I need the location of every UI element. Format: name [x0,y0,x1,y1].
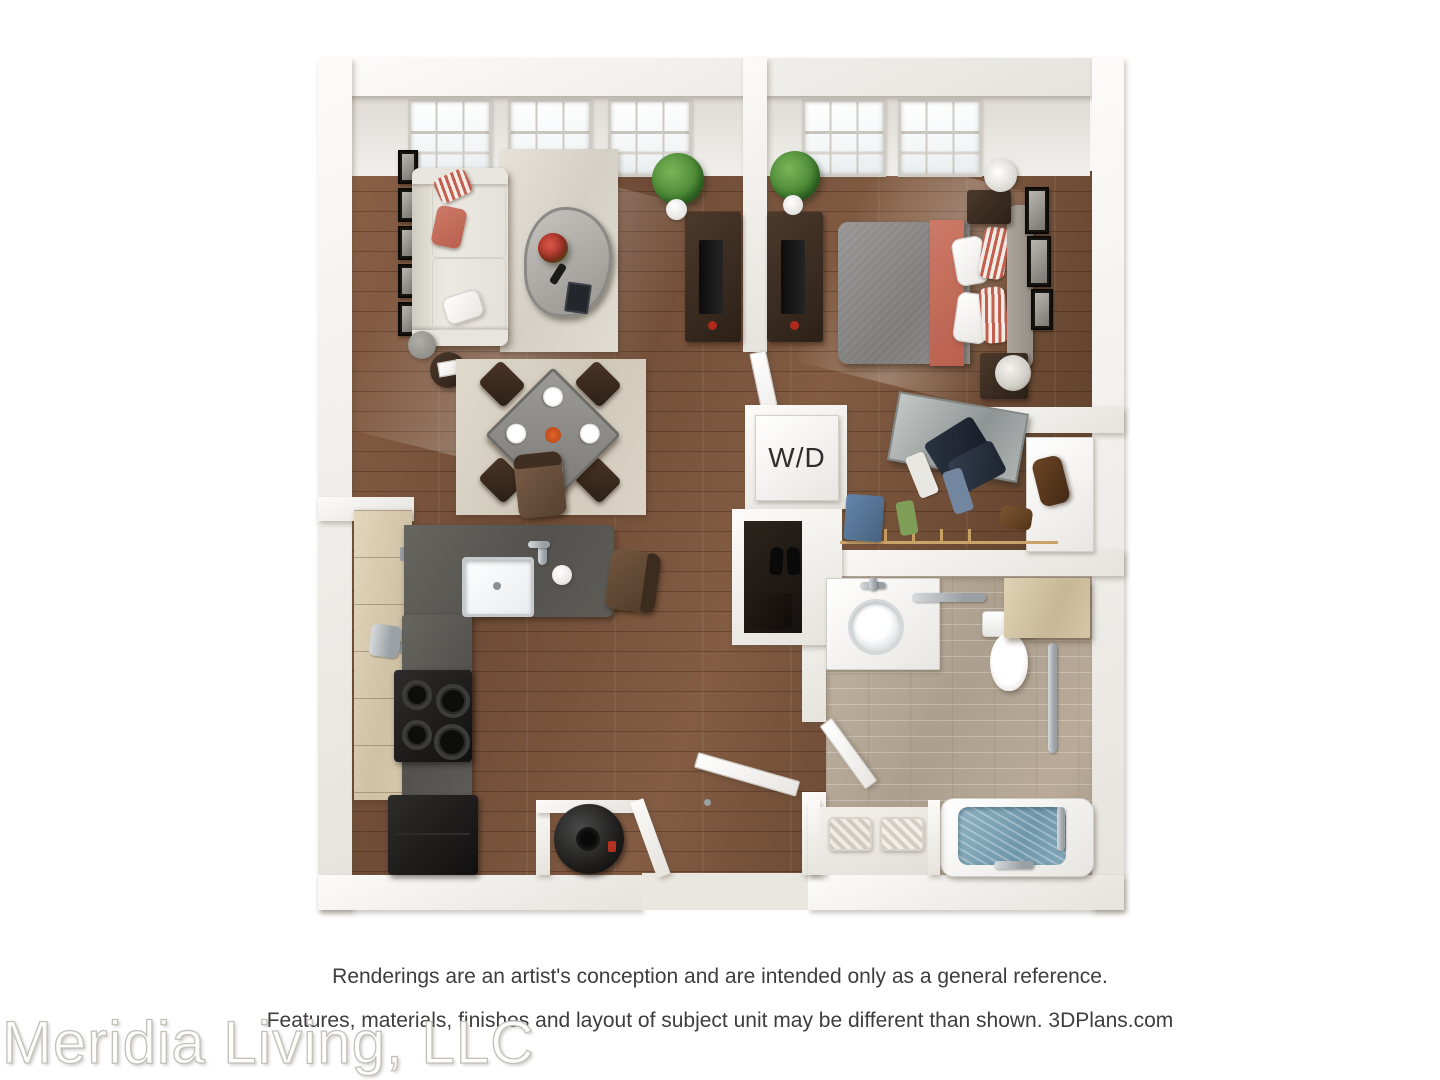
potted-plant [770,151,820,201]
tv-living [699,240,723,314]
vanity-sink [848,599,904,655]
flower-bouquet [538,233,568,263]
folded-jeans [843,494,884,543]
disclaimer-line-1: Renderings are an artist's conception an… [0,965,1440,989]
wall-art-frame [1031,289,1053,330]
plant-pot [666,199,687,220]
toilet-bowl [990,633,1028,691]
grab-bar [1048,643,1057,753]
washer-dryer-unit: W/D [755,415,839,501]
tub-faucet [994,861,1034,869]
washer-dryer-label: W/D [756,416,838,500]
centerpiece [542,424,565,447]
exterior-wall-top [345,58,1097,96]
window [408,99,492,177]
linen-closet-wall [808,800,820,875]
hanging-coats [748,593,792,629]
floor-plan-page: W/D [0,0,1440,1080]
stove-burner [402,720,432,750]
kitchen-sink [462,557,534,617]
exterior-wall-bottom-left [318,875,642,910]
sink-drain [493,582,501,590]
place-setting [502,419,530,447]
place-setting [576,419,604,447]
tv-bedroom [781,240,805,314]
floor-plan: W/D [300,55,1140,915]
wall-art-frame [1027,236,1051,287]
nightstand [967,190,1011,224]
exterior-wall-right [1092,58,1124,910]
towel-basket [880,817,924,851]
bathtub-water [958,807,1066,865]
stove-burner [402,680,432,710]
clothes-hanger [940,529,943,542]
clothes-hanger [884,529,887,542]
basket-lamp [995,355,1031,391]
linen-closet-wall [928,800,940,875]
kettle [368,623,402,659]
closet-bottom-wall [802,550,1124,576]
exterior-wall-left [318,58,352,910]
decor-vase-red [790,321,799,330]
bar-stool [604,548,662,614]
counter-vase-white [552,565,572,585]
vanity-faucet-handle [869,577,877,591]
dress-shoes [786,547,800,576]
floor-planter [408,331,436,359]
tablet-on-table [564,281,592,314]
living-bedroom-divider-wall [743,58,767,352]
table-lamp [984,159,1017,192]
place-setting [539,383,567,411]
plant-pot [783,195,803,215]
stove-burner [434,724,470,760]
stove-burner [436,684,470,718]
towel-basket [828,817,872,851]
bar-stool [513,451,567,520]
cabinet-over-toilet [1004,578,1090,638]
clothes-hanger [968,529,971,542]
decor-vase-red [708,321,717,330]
company-watermark: Meridia Living, LLC [2,1008,535,1077]
sofa-back [412,168,430,346]
kitchen-faucet-spout [528,541,550,548]
potted-plant [652,153,704,205]
range-stove [394,670,472,762]
grab-bar [912,593,986,602]
exterior-wall-bottom-right [808,875,1124,910]
window [898,99,982,177]
entry-door-knob [704,799,711,806]
water-heater-valve [576,827,600,851]
wall-art-frame [1025,187,1049,234]
refrigerator-door-seam [396,833,470,835]
dress-shoes [769,547,784,576]
clutch-bag [999,505,1034,531]
water-heater-warning-sticker [608,841,616,852]
refrigerator [388,795,478,875]
entry-threshold [642,873,808,910]
tub-grab-handle [1057,807,1065,851]
